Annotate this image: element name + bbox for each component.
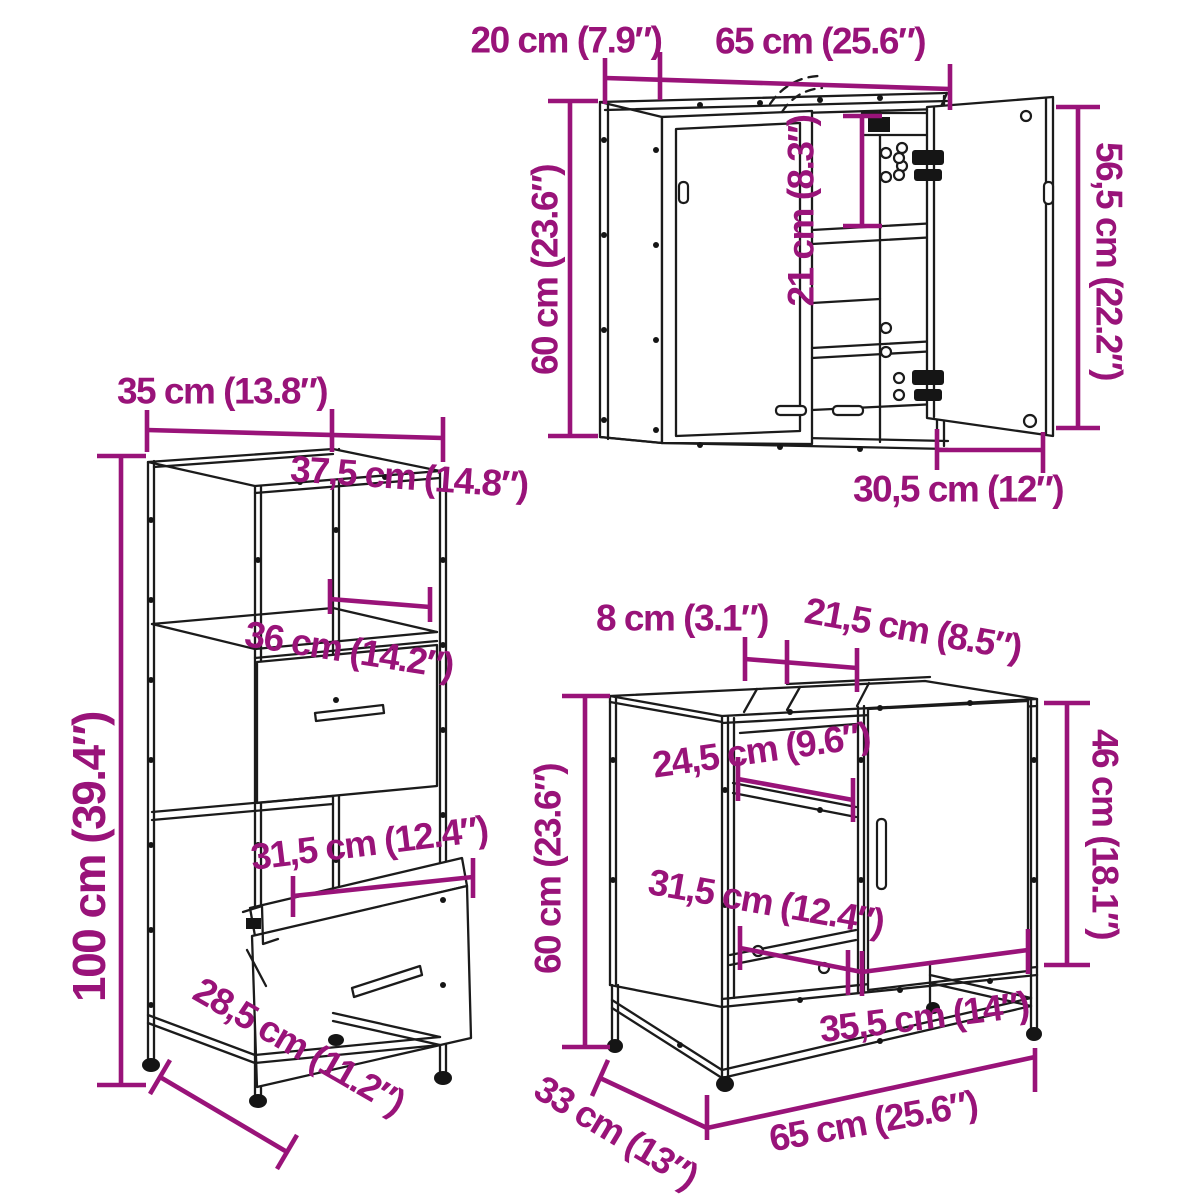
- dim-label-wall-door-width: 30,5 cm (12″): [853, 471, 1063, 508]
- dim-label-sink-height: 60 cm (23.6″): [530, 764, 567, 974]
- dim-label-sink-side-height: 46 cm (18.1″): [1087, 729, 1124, 939]
- dim-label-wall-depth: 20 cm (7.9″): [471, 22, 662, 59]
- product-dimension-diagram: 20 cm (7.9″) 65 cm (25.6″) 60 cm (23.6″)…: [0, 0, 1200, 1200]
- dim-label-wall-height: 60 cm (23.6″): [527, 165, 564, 375]
- dim-label-wall-width: 65 cm (25.6″): [715, 23, 925, 60]
- tall-cabinet-drawing: [142, 449, 471, 1108]
- dim-label-wall-door-height: 56,5 cm (22.2″): [1091, 142, 1128, 380]
- dim-label-wall-inner-height: 21 cm (8.3″): [783, 116, 820, 307]
- wall-cabinet-drawing: [600, 76, 1053, 452]
- dim-label-tall-width: 35 cm (13.8″): [117, 373, 327, 410]
- dim-label-sink-top-gap: 8 cm (3.1″): [596, 600, 768, 637]
- dim-label-tall-height: 100 cm (39.4″): [66, 712, 112, 1002]
